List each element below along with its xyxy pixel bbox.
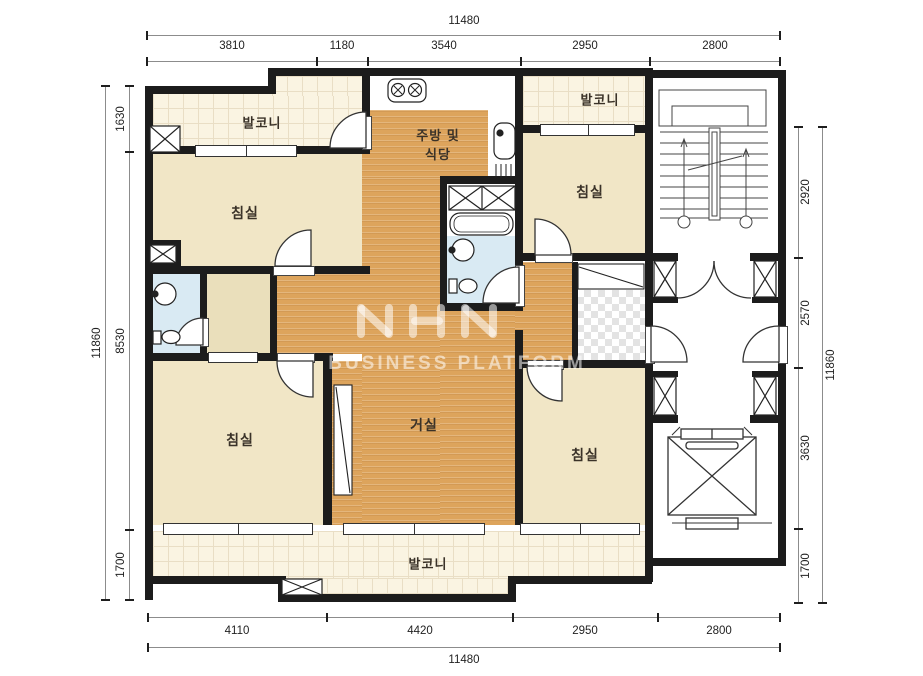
- dim-tick: [779, 31, 781, 40]
- wall: [270, 273, 277, 361]
- dim-bottom-seg-1: 4420: [407, 625, 433, 637]
- shaft-cap: [652, 297, 678, 303]
- elevator-door: [681, 429, 743, 439]
- room-label-balcony-top-right: 발코니: [581, 90, 620, 109]
- duct-shaft-icon: [754, 261, 776, 297]
- wall: [778, 362, 786, 566]
- elevator-x: [668, 437, 756, 515]
- room-label-bedroom-bottom-left: 침실: [226, 430, 254, 450]
- dim-line: [147, 61, 781, 62]
- duct-shaft-frame: [145, 240, 181, 268]
- room-label-balcony-bottom: 발코니: [409, 554, 448, 573]
- door-threshold: [535, 253, 573, 263]
- duct-shaft-x: [754, 261, 776, 297]
- dim-tick: [147, 643, 149, 652]
- kitchen-counter-area: [368, 76, 515, 110]
- door-threshold: [515, 265, 525, 307]
- window: [540, 124, 635, 136]
- wall: [145, 86, 275, 94]
- wall: [145, 576, 285, 584]
- balcony-bottom-floor: [153, 531, 645, 578]
- window-mullion: [246, 145, 247, 157]
- stair-direction-line: [681, 139, 687, 216]
- shoe-cabinet-icon: [578, 264, 644, 289]
- wall: [440, 176, 523, 184]
- shaft-cap: [652, 371, 678, 377]
- wall: [362, 76, 370, 116]
- elevator-counterweight: [686, 518, 738, 529]
- dim-tick: [779, 643, 781, 652]
- dim-top-seg-0: 3810: [219, 40, 245, 52]
- window: [163, 523, 313, 535]
- dim-tick: [794, 367, 803, 369]
- dim-left-total: 11860: [91, 327, 103, 358]
- wall: [750, 415, 780, 423]
- dim-right-seg-2: 3630: [800, 435, 812, 461]
- wall: [313, 266, 370, 274]
- dim-left-seg-2: 1700: [115, 552, 127, 578]
- stair-landing: [659, 90, 766, 126]
- dim-right-seg-0: 2920: [800, 179, 812, 205]
- window-mullion: [414, 523, 415, 535]
- dim-tick: [794, 602, 803, 604]
- door-threshold: [277, 353, 315, 363]
- entrance-double-door-arc: [677, 261, 714, 298]
- door-threshold: [273, 266, 315, 276]
- dim-tick: [794, 528, 803, 530]
- door-arc: [651, 326, 687, 362]
- entrance-double-door-arc: [714, 261, 751, 298]
- stair-stringer: [709, 128, 720, 220]
- dim-tick: [794, 257, 803, 259]
- dim-tick: [101, 599, 110, 601]
- door-threshold: [200, 318, 209, 347]
- floorplan-canvas: BUSINESS PLATFORM 발코니 발코니 발코니 침실 침실 침실 침…: [0, 0, 923, 676]
- dim-line: [129, 86, 130, 600]
- wall: [515, 368, 523, 525]
- window: [343, 523, 485, 535]
- stair-treads-right: [719, 132, 768, 218]
- wall: [572, 262, 578, 362]
- window: [208, 352, 258, 363]
- wall: [278, 594, 516, 602]
- shaft-cap: [752, 371, 780, 377]
- wall: [268, 68, 652, 76]
- dim-bottom-seg-0: 4110: [225, 625, 250, 637]
- wall: [652, 415, 678, 423]
- duct-shaft-icon: [654, 261, 676, 297]
- shoe-cabinet-diagonal: [579, 267, 643, 287]
- dim-tick: [794, 126, 803, 128]
- dim-bottom-seg-3: 2800: [706, 625, 732, 637]
- dim-tick: [367, 57, 369, 66]
- dim-tick: [316, 57, 318, 66]
- wall: [440, 303, 523, 311]
- kitchen-label-line1: 주방 및: [416, 125, 460, 144]
- dim-top-seg-4: 2800: [702, 40, 728, 52]
- duct-shaft-x: [754, 377, 776, 415]
- dim-line: [105, 86, 106, 600]
- dim-tick: [125, 151, 134, 153]
- dim-tick: [125, 599, 134, 601]
- dim-top-seg-2: 3540: [431, 40, 457, 52]
- window: [520, 523, 640, 535]
- dim-line: [148, 647, 780, 648]
- wall: [648, 558, 785, 566]
- living-room-floor: [440, 303, 515, 525]
- stair-direction-line: [743, 149, 749, 216]
- watermark-subtitle: BUSINESS PLATFORM: [328, 353, 586, 375]
- wall: [778, 70, 786, 326]
- bathroom-middle-floor: [447, 236, 515, 303]
- dim-tick: [146, 31, 148, 40]
- dim-tick: [125, 85, 134, 87]
- wall: [645, 68, 653, 326]
- dim-tick: [779, 57, 781, 66]
- dressing-room-floor: [207, 273, 270, 353]
- stair-landing-inner: [672, 106, 748, 126]
- wall: [323, 361, 332, 525]
- dim-right-seg-3: 1700: [800, 553, 812, 579]
- balcony-top-left-floor-upper: [272, 76, 362, 96]
- kitchen-label-line2: 식당: [416, 144, 460, 163]
- dim-tick: [147, 613, 149, 622]
- dim-right-total: 11860: [825, 349, 837, 380]
- dim-left-seg-0: 1630: [115, 106, 127, 132]
- dim-line: [798, 127, 799, 603]
- stair-stringer-inner: [712, 132, 717, 216]
- dim-tick: [818, 126, 827, 128]
- wall: [508, 576, 652, 584]
- dim-line: [148, 617, 780, 618]
- balcony-bottom-floor-bump: [282, 578, 510, 595]
- dim-tick: [146, 57, 148, 66]
- dim-tick: [125, 529, 134, 531]
- wall: [645, 362, 653, 582]
- door-threshold: [362, 116, 372, 150]
- window-mullion: [580, 523, 581, 535]
- living-room-left-floor: [332, 361, 362, 525]
- wall: [515, 253, 535, 261]
- room-label-bedroom-bottom-right: 침실: [571, 445, 599, 465]
- door-arc: [743, 326, 779, 362]
- dim-line: [822, 127, 823, 603]
- wall: [652, 253, 678, 261]
- duct-shaft-icon: [754, 377, 776, 415]
- room-label-kitchen: 주방 및 식당: [416, 125, 460, 163]
- shaft-cap: [752, 297, 780, 303]
- kitchen-living-strip-floor: [362, 178, 440, 525]
- stair-treads-left: [660, 132, 709, 218]
- duct-shaft-x: [654, 377, 676, 415]
- dim-line: [147, 35, 781, 36]
- hallway-floor: [277, 274, 362, 354]
- window-mullion: [588, 124, 589, 136]
- wall: [648, 70, 785, 78]
- dim-bottom-total: 11480: [448, 654, 479, 666]
- dim-top-seg-3: 2950: [572, 40, 598, 52]
- dim-tick: [657, 613, 659, 622]
- wall: [440, 176, 447, 310]
- entry-floor: [577, 290, 645, 360]
- dim-tick: [818, 602, 827, 604]
- wall: [571, 253, 652, 261]
- door-threshold: [645, 326, 655, 364]
- dim-tick: [512, 613, 514, 622]
- dim-bottom-seg-2: 2950: [572, 625, 598, 637]
- room-label-balcony-top-left: 발코니: [243, 113, 282, 132]
- dim-top-seg-1: 1180: [330, 40, 355, 52]
- room-label-bedroom-top-right: 침실: [576, 182, 604, 202]
- room-label-bedroom-top-left: 침실: [231, 203, 259, 223]
- room-label-living-room: 거실: [410, 415, 438, 435]
- stair-newel: [678, 216, 690, 228]
- dim-left-seg-1: 8530: [115, 328, 127, 354]
- dim-top-total: 11480: [448, 15, 479, 27]
- door-threshold: [778, 326, 788, 364]
- dim-tick: [326, 613, 328, 622]
- wall: [145, 86, 153, 600]
- dim-tick: [101, 85, 110, 87]
- window-mullion: [238, 523, 239, 535]
- elevator-sill: [686, 442, 738, 449]
- stair-flight-connector: [688, 156, 742, 170]
- window: [195, 145, 297, 157]
- wall: [750, 253, 780, 261]
- wall: [200, 273, 207, 318]
- duct-shaft-icon: [654, 377, 676, 415]
- dim-tick: [520, 57, 522, 66]
- bathroom-middle-upper-floor: [447, 184, 515, 236]
- dim-tick: [779, 613, 781, 622]
- elevator-car: [668, 437, 756, 515]
- bathroom-left-floor: [153, 273, 200, 353]
- kitchen-sink-area: [488, 110, 515, 183]
- stair-newel: [740, 216, 752, 228]
- dim-right-seg-1: 2570: [800, 300, 812, 326]
- dim-tick: [649, 57, 651, 66]
- elevator-bracket: [672, 427, 752, 435]
- duct-shaft-x: [654, 261, 676, 297]
